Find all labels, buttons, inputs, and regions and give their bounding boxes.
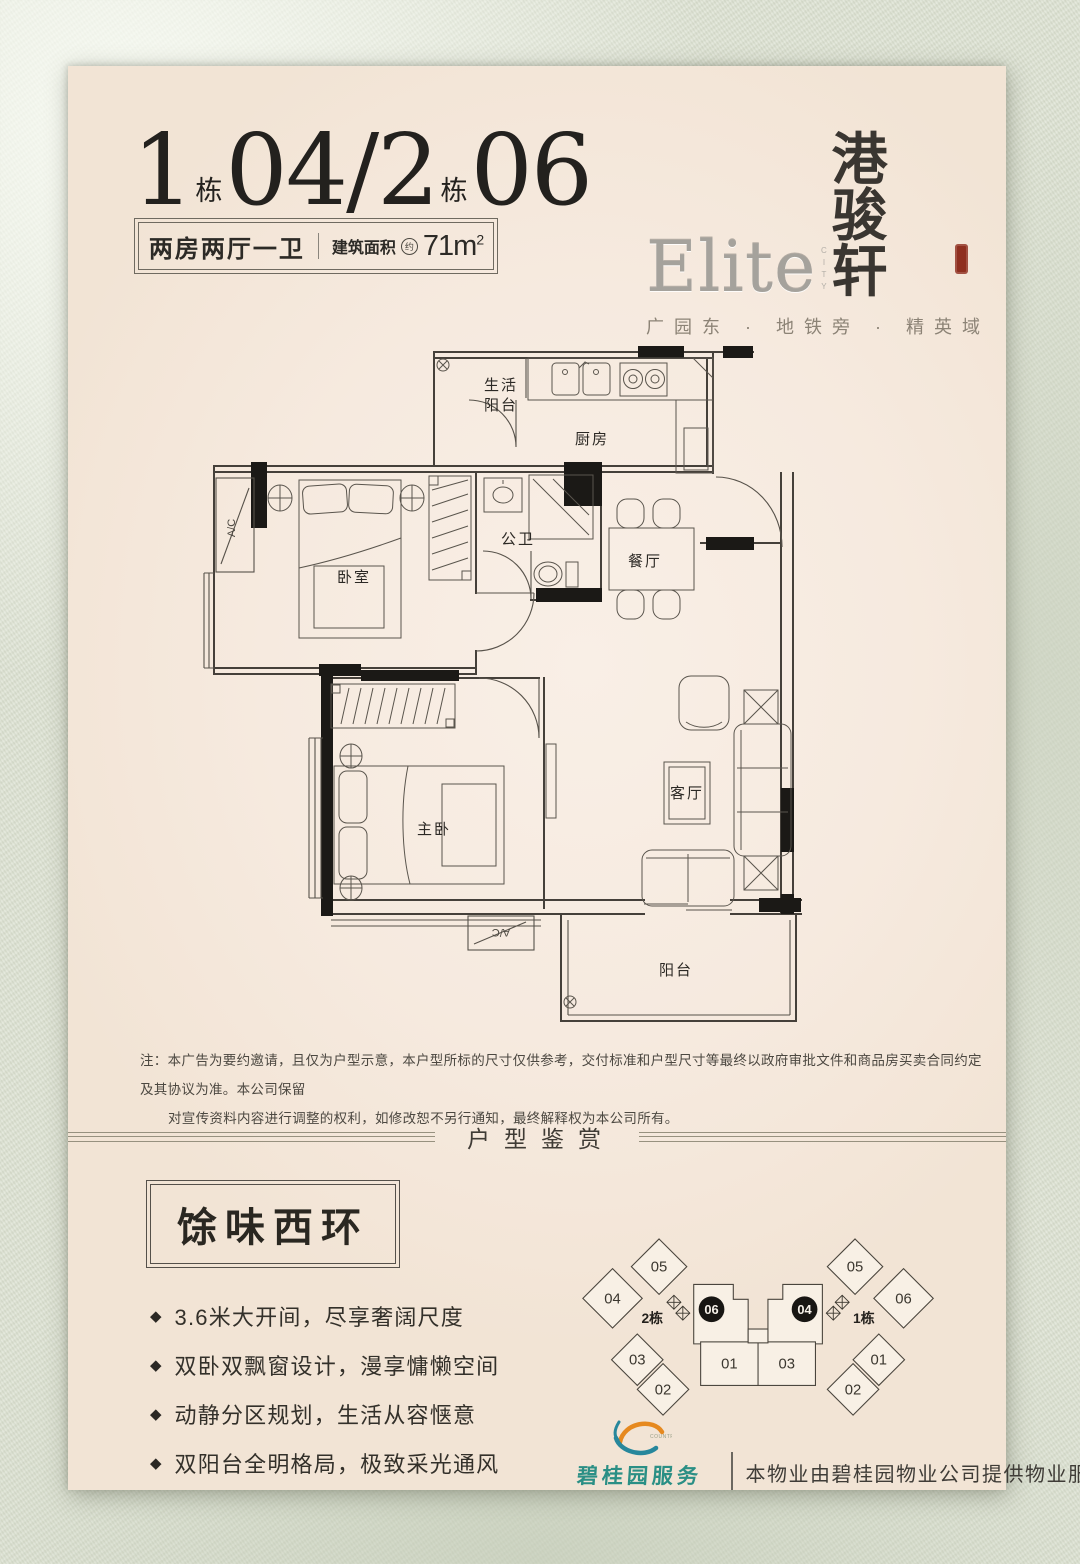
spec-area-label: 建筑面积 xyxy=(332,234,396,258)
section-title: 户型鉴赏 xyxy=(459,1120,615,1154)
bay-windows xyxy=(204,358,541,926)
keyplan-label-bldg2: 2栋 xyxy=(641,1310,663,1326)
selling-point: ◆双阳台全明格局，极致采光通风 xyxy=(150,1447,550,1479)
spec-divider xyxy=(318,233,319,259)
unit-title-slash: / xyxy=(346,114,377,228)
svg-text:COUNTRY GARDEN: COUNTRY GARDEN xyxy=(650,1434,672,1440)
living-furniture xyxy=(546,676,791,1008)
master-furniture xyxy=(331,684,504,900)
disclaimer-line1: 注：本广告为要约邀请，且仅为户型示意，本户型所标的尺寸仅供参考，交付标准和户型尺… xyxy=(140,1046,992,1104)
section-divider: 户型鉴赏 xyxy=(68,1120,1006,1154)
kitchen-fixtures xyxy=(437,358,713,473)
diamond-bullet-icon: ◆ xyxy=(150,1454,162,1472)
keyplan-unit: 04 xyxy=(604,1291,621,1307)
selling-title: 馀味西环 xyxy=(150,1184,396,1264)
svg-text:A/C: A/C xyxy=(226,519,238,537)
divider-rule-left xyxy=(68,1132,435,1142)
diamond-bullet-icon: ◆ xyxy=(150,1307,162,1325)
keyplan-unit: 05 xyxy=(847,1260,864,1276)
keyplan-unit: 05 xyxy=(651,1260,668,1276)
building-key-plan: 05 04 03 02 01 05 06 01 02 03 06 04 2栋 1… xyxy=(556,1234,970,1428)
country-garden-name: 碧桂园服务 xyxy=(575,1460,702,1490)
keyplan-unit: 01 xyxy=(721,1357,738,1373)
brand-seal-icon xyxy=(955,244,968,274)
room-label-bedroom: 卧室 xyxy=(337,569,371,586)
keyplan-unit: 02 xyxy=(845,1382,862,1398)
elevator-icon xyxy=(676,1306,690,1320)
elevator-icon xyxy=(835,1295,849,1309)
brand-latin: Elite xyxy=(646,234,816,301)
svg-text:04: 04 xyxy=(797,1302,812,1317)
spec-box: 两房两厅一卫 建筑面积 约 71m2 xyxy=(138,222,494,270)
keyplan-label-bldg1: 1栋 xyxy=(853,1310,875,1326)
floor-plan: A/C A/C xyxy=(196,338,841,1043)
brand-logo: Elite CITY 港骏轩 广园东 · 地铁旁 · 精英域 xyxy=(646,132,968,339)
brand-tagline: 广园东 · 地铁旁 · 精英域 xyxy=(646,313,968,339)
poster-page: 1栋04/2栋06 两房两厅一卫 建筑面积 约 71m2 Elite CITY … xyxy=(68,66,1006,1490)
room-label-balcony: 阳台 xyxy=(659,962,693,979)
brand-chinese: 港骏轩 xyxy=(831,132,948,300)
country-garden-swirl-icon: COUNTRY GARDEN xyxy=(606,1414,672,1460)
footer-divider xyxy=(731,1452,733,1490)
selling-points: 馀味西环 ◆3.6米大开间，尽享奢阔尺度 ◆双卧双飘窗设计，漫享慵懒空间 ◆动静… xyxy=(150,1184,550,1496)
room-label-living: 客厅 xyxy=(670,785,704,802)
unit-title-num1: 1 xyxy=(132,114,192,228)
divider-rule-right xyxy=(639,1132,1006,1142)
country-garden-logo: COUNTRY GARDEN 碧桂园服务 xyxy=(560,1414,718,1490)
keyplan-unit: 01 xyxy=(871,1353,888,1369)
unit-title-num2: 2 xyxy=(377,114,437,228)
selling-point: ◆3.6米大开间，尽享奢阔尺度 xyxy=(150,1300,550,1332)
bedroom-furniture xyxy=(268,476,471,638)
svg-text:阳台: 阳台 xyxy=(484,397,518,414)
svg-text:A/C: A/C xyxy=(492,926,510,938)
keyplan-unit: 06 xyxy=(895,1291,912,1307)
diamond-bullet-icon: ◆ xyxy=(150,1405,162,1423)
spec-area: 建筑面积 约 71m2 xyxy=(332,230,483,263)
unit-title-bldg2: 栋 xyxy=(440,176,467,207)
selling-point: ◆双卧双飘窗设计，漫享慵懒空间 xyxy=(150,1349,550,1381)
footer: COUNTRY GARDEN 碧桂园服务 本物业由碧桂园物业公司提供物业服务 xyxy=(560,1414,1080,1490)
room-label-kitchen: 厨房 xyxy=(575,431,609,448)
keyplan-unit: 02 xyxy=(655,1382,672,1398)
footer-note: 本物业由碧桂园物业公司提供物业服务 xyxy=(746,1458,1080,1490)
door-arcs xyxy=(469,400,782,738)
ac-platform-bottom: A/C xyxy=(468,916,534,950)
diamond-bullet-icon: ◆ xyxy=(150,1356,162,1374)
unit-title: 1栋04/2栋06 xyxy=(132,122,591,220)
spec-layout: 两房两厅一卫 xyxy=(149,229,305,264)
room-label-dining: 餐厅 xyxy=(628,553,662,570)
selling-point: ◆动静分区规划，生活从容惬意 xyxy=(150,1398,550,1430)
keyplan-unit: 03 xyxy=(629,1353,646,1369)
unit-title-code1: 04 xyxy=(225,114,346,228)
room-label-bath: 公卫 xyxy=(501,531,535,548)
room-label-master: 主卧 xyxy=(417,821,451,838)
elevator-icon xyxy=(826,1306,840,1320)
room-label-service-balcony: 生活 xyxy=(484,377,518,394)
keyplan-unit: 03 xyxy=(779,1357,796,1373)
unit-title-code2: 06 xyxy=(470,114,591,228)
svg-text:06: 06 xyxy=(704,1302,718,1317)
brand-latin-sub: CITY xyxy=(819,246,828,292)
ac-platform-left: A/C xyxy=(216,478,254,572)
elevator-icon xyxy=(667,1295,681,1309)
spec-area-value: 71m2 xyxy=(423,230,483,263)
unit-title-bldg1: 栋 xyxy=(195,176,222,207)
approx-circle-icon: 约 xyxy=(401,238,418,255)
